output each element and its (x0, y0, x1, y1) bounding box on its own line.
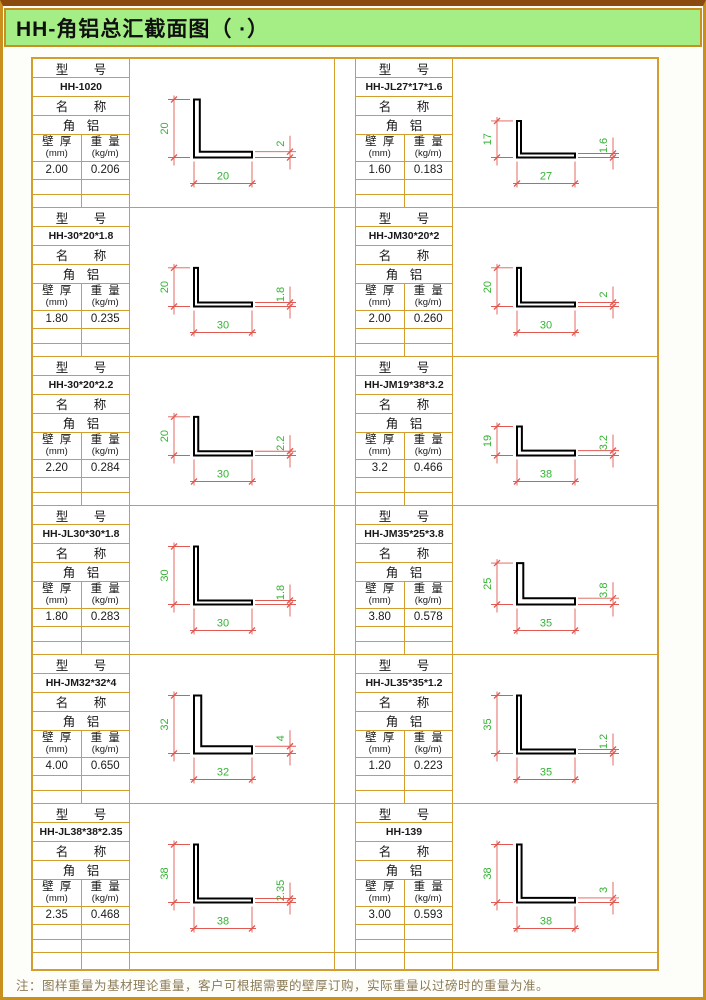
name-header-label: 名 称 (33, 246, 129, 265)
profile-cell: 型 号 HH-30*20*2.2 名 称 角 铝 壁 厚 (mm) 重 量 (k… (33, 357, 334, 505)
profile-diagram: 17271.6 (453, 59, 657, 207)
wall-thickness-unit: (mm) (46, 149, 68, 159)
spec-table: 型 号 HH-JM32*32*4 名 称 角 铝 壁 厚 (mm) 重 量 (k… (33, 655, 130, 803)
footer-strip-gap (453, 953, 657, 969)
weight-unit: (kg/m) (415, 149, 442, 159)
empty-row (356, 627, 452, 642)
model-header-label: 型 号 (356, 655, 452, 674)
model-header-label: 型 号 (356, 357, 452, 376)
product-name-label: 角 铝 (33, 712, 129, 731)
empty-row (356, 642, 452, 654)
profile-cell: 型 号 HH-1020 名 称 角 铝 壁 厚 (mm) 重 量 (kg/m) … (33, 59, 334, 207)
spec-table: 型 号 HH-1020 名 称 角 铝 壁 厚 (mm) 重 量 (kg/m) … (33, 59, 130, 207)
value-row: 2.00 0.206 (33, 162, 129, 181)
weight-unit: (kg/m) (415, 596, 442, 606)
empty-row (356, 493, 452, 505)
column-header-row: 壁 厚 (mm) 重 量 (kg/m) (356, 135, 452, 162)
weight-header: 重 量 (kg/m) (405, 731, 453, 757)
angle-profile-drawing: 19383.2 (453, 357, 657, 505)
wall-thickness-value: 2.00 (356, 311, 405, 329)
svg-text:20: 20 (159, 122, 171, 134)
wall-thickness-unit: (mm) (369, 894, 391, 904)
weight-value: 0.284 (82, 460, 130, 478)
angle-profile-drawing: 20202 (130, 59, 334, 207)
angle-profile-drawing: 35351.2 (453, 655, 657, 803)
empty-row (33, 344, 129, 356)
wall-thickness-value: 3.00 (356, 907, 405, 925)
weight-value: 0.578 (405, 609, 453, 627)
svg-text:4: 4 (275, 735, 287, 741)
wall-thickness-value: 1.80 (33, 311, 82, 329)
model-number: HH-30*20*2.2 (33, 376, 129, 395)
product-name-label: 角 铝 (33, 116, 129, 135)
value-row: 3.80 0.578 (356, 609, 452, 628)
value-row: 1.20 0.223 (356, 758, 452, 777)
wall-thickness-header: 壁 厚 (mm) (33, 284, 82, 310)
weight-header: 重 量 (kg/m) (82, 731, 130, 757)
svg-text:20: 20 (482, 281, 494, 293)
empty-row (356, 478, 452, 493)
svg-text:2: 2 (598, 291, 610, 297)
product-name-label: 角 铝 (356, 414, 452, 433)
profile-grid: 型 号 HH-1020 名 称 角 铝 壁 厚 (mm) 重 量 (kg/m) … (31, 57, 659, 971)
value-row: 2.35 0.468 (33, 907, 129, 926)
wall-thickness-value: 2.35 (33, 907, 82, 925)
profile-cell: 型 号 HH-139 名 称 角 铝 壁 厚 (mm) 重 量 (kg/m) 3… (356, 804, 657, 952)
product-name-label: 角 铝 (33, 414, 129, 433)
empty-row (33, 925, 129, 940)
wall-thickness-unit: (mm) (369, 447, 391, 457)
svg-text:20: 20 (159, 281, 171, 293)
footer-strip-left-table (33, 953, 130, 969)
name-header-label: 名 称 (33, 693, 129, 712)
profile-cell: 型 号 HH-JL30*30*1.8 名 称 角 铝 壁 厚 (mm) 重 量 … (33, 506, 334, 654)
name-header-label: 名 称 (356, 246, 452, 265)
weight-header: 重 量 (kg/m) (82, 880, 130, 906)
wall-thickness-unit: (mm) (46, 894, 68, 904)
grid-row: 型 号 HH-1020 名 称 角 铝 壁 厚 (mm) 重 量 (kg/m) … (33, 59, 657, 208)
model-header-label: 型 号 (33, 208, 129, 227)
wall-thickness-unit: (mm) (46, 447, 68, 457)
grid-row: 型 号 HH-30*20*1.8 名 称 角 铝 壁 厚 (mm) 重 量 (k… (33, 208, 657, 357)
empty-row (33, 180, 129, 195)
model-number: HH-JL38*38*2.35 (33, 823, 129, 842)
profile-diagram: 32324 (130, 655, 334, 803)
weight-unit: (kg/m) (415, 447, 442, 457)
wall-thickness-header: 壁 厚 (mm) (33, 731, 82, 757)
grid-row: 型 号 HH-JL38*38*2.35 名 称 角 铝 壁 厚 (mm) 重 量… (33, 804, 657, 953)
svg-text:25: 25 (482, 578, 494, 590)
angle-profile-drawing: 20302 (453, 208, 657, 356)
svg-text:3.2: 3.2 (598, 435, 610, 450)
profile-diagram: 20302 (453, 208, 657, 356)
profile-diagram: 25353.8 (453, 506, 657, 654)
value-row: 1.80 0.283 (33, 609, 129, 628)
angle-profile-drawing: 38383 (453, 804, 657, 952)
svg-text:38: 38 (540, 469, 552, 481)
name-header-label: 名 称 (33, 544, 129, 563)
profile-cell: 型 号 HH-JL35*35*1.2 名 称 角 铝 壁 厚 (mm) 重 量 … (356, 655, 657, 803)
profile-diagram: 20301.8 (130, 208, 334, 356)
title-bar: HH-角铝总汇截面图（ ·） (4, 8, 702, 47)
weight-unit: (kg/m) (92, 298, 119, 308)
model-header-label: 型 号 (33, 506, 129, 525)
model-number: HH-JM32*32*4 (33, 674, 129, 693)
weight-value: 0.468 (82, 907, 130, 925)
profile-cell: 型 号 HH-JL38*38*2.35 名 称 角 铝 壁 厚 (mm) 重 量… (33, 804, 334, 952)
wall-thickness-header: 壁 厚 (mm) (356, 135, 405, 161)
model-number: HH-JL27*17*1.6 (356, 78, 452, 97)
model-number: HH-JM30*20*2 (356, 227, 452, 246)
value-row: 3.00 0.593 (356, 907, 452, 926)
weight-unit: (kg/m) (92, 149, 119, 159)
svg-text:1.8: 1.8 (275, 287, 287, 302)
column-header-row: 壁 厚 (mm) 重 量 (kg/m) (356, 433, 452, 460)
angle-profile-drawing: 30301.8 (130, 506, 334, 654)
product-name-label: 角 铝 (356, 861, 452, 880)
model-header-label: 型 号 (33, 804, 129, 823)
model-header-label: 型 号 (33, 59, 129, 78)
svg-text:30: 30 (217, 320, 229, 332)
empty-row (356, 925, 452, 940)
column-header-row: 壁 厚 (mm) 重 量 (kg/m) (33, 433, 129, 460)
weight-unit: (kg/m) (415, 298, 442, 308)
weight-unit: (kg/m) (92, 894, 119, 904)
weight-value: 0.466 (405, 460, 453, 478)
profile-diagram: 30301.8 (130, 506, 334, 654)
spec-table: 型 号 HH-30*20*2.2 名 称 角 铝 壁 厚 (mm) 重 量 (k… (33, 357, 130, 505)
svg-text:32: 32 (217, 767, 229, 779)
model-header-label: 型 号 (356, 208, 452, 227)
angle-profile-drawing: 25353.8 (453, 506, 657, 654)
grid-row: 型 号 HH-JL30*30*1.8 名 称 角 铝 壁 厚 (mm) 重 量 … (33, 506, 657, 655)
empty-row (33, 195, 129, 207)
column-header-row: 壁 厚 (mm) 重 量 (kg/m) (356, 284, 452, 311)
empty-row (356, 940, 452, 952)
footer-strip-right-table (356, 953, 453, 969)
wall-thickness-value: 3.2 (356, 460, 405, 478)
svg-text:32: 32 (159, 718, 171, 730)
wall-thickness-unit: (mm) (46, 745, 68, 755)
weight-value: 0.235 (82, 311, 130, 329)
svg-text:35: 35 (482, 718, 494, 730)
svg-text:30: 30 (540, 320, 552, 332)
weight-value: 0.183 (405, 162, 453, 180)
svg-text:2.35: 2.35 (275, 880, 287, 901)
empty-row (33, 493, 129, 505)
svg-text:1.8: 1.8 (275, 585, 287, 600)
spec-table: 型 号 HH-JL35*35*1.2 名 称 角 铝 壁 厚 (mm) 重 量 … (356, 655, 453, 803)
spec-table: 型 号 HH-JM19*38*3.2 名 称 角 铝 壁 厚 (mm) 重 量 … (356, 357, 453, 505)
product-name-label: 角 铝 (356, 712, 452, 731)
page-title: HH-角铝总汇截面图（ ·） (16, 13, 269, 43)
weight-value: 0.206 (82, 162, 130, 180)
column-divider (334, 953, 356, 969)
spec-table: 型 号 HH-139 名 称 角 铝 壁 厚 (mm) 重 量 (kg/m) 3… (356, 804, 453, 952)
svg-text:1.2: 1.2 (598, 734, 610, 749)
model-number: HH-30*20*1.8 (33, 227, 129, 246)
profile-cell: 型 号 HH-30*20*1.8 名 称 角 铝 壁 厚 (mm) 重 量 (k… (33, 208, 334, 356)
footer-strip-gap (130, 953, 334, 969)
product-name-label: 角 铝 (356, 563, 452, 582)
wall-thickness-header: 壁 厚 (mm) (33, 880, 82, 906)
svg-text:1.6: 1.6 (598, 138, 610, 153)
weight-unit: (kg/m) (415, 745, 442, 755)
wall-thickness-unit: (mm) (369, 298, 391, 308)
svg-text:19: 19 (482, 435, 494, 447)
empty-row (33, 478, 129, 493)
profile-cell: 型 号 HH-JM35*25*3.8 名 称 角 铝 壁 厚 (mm) 重 量 … (356, 506, 657, 654)
wall-thickness-header: 壁 厚 (mm) (356, 433, 405, 459)
svg-text:35: 35 (540, 618, 552, 630)
weight-header: 重 量 (kg/m) (405, 582, 453, 608)
wall-thickness-value: 1.60 (356, 162, 405, 180)
svg-text:30: 30 (217, 618, 229, 630)
wall-thickness-unit: (mm) (46, 298, 68, 308)
grid-row: 型 号 HH-JM32*32*4 名 称 角 铝 壁 厚 (mm) 重 量 (k… (33, 655, 657, 804)
profile-diagram: 38382.35 (130, 804, 334, 952)
svg-text:38: 38 (217, 916, 229, 928)
value-row: 1.80 0.235 (33, 311, 129, 330)
wall-thickness-value: 4.00 (33, 758, 82, 776)
name-header-label: 名 称 (356, 544, 452, 563)
profile-cell: 型 号 HH-JL27*17*1.6 名 称 角 铝 壁 厚 (mm) 重 量 … (356, 59, 657, 207)
profile-diagram: 19383.2 (453, 357, 657, 505)
weight-unit: (kg/m) (92, 596, 119, 606)
weight-unit: (kg/m) (92, 745, 119, 755)
table-footer-strip (33, 953, 657, 969)
wall-thickness-header: 壁 厚 (mm) (356, 582, 405, 608)
model-header-label: 型 号 (356, 804, 452, 823)
svg-text:27: 27 (540, 171, 552, 183)
model-number: HH-JM35*25*3.8 (356, 525, 452, 544)
profile-diagram: 20302.2 (130, 357, 334, 505)
empty-row (356, 776, 452, 791)
wall-thickness-header: 壁 厚 (mm) (33, 582, 82, 608)
svg-text:3.8: 3.8 (598, 583, 610, 598)
column-header-row: 壁 厚 (mm) 重 量 (kg/m) (33, 284, 129, 311)
column-divider (334, 357, 356, 505)
column-divider (334, 506, 356, 654)
wall-thickness-value: 3.80 (356, 609, 405, 627)
empty-row (33, 627, 129, 642)
empty-row (356, 329, 452, 344)
weight-header: 重 量 (kg/m) (82, 284, 130, 310)
wall-thickness-value: 1.20 (356, 758, 405, 776)
column-header-row: 壁 厚 (mm) 重 量 (kg/m) (356, 731, 452, 758)
column-header-row: 壁 厚 (mm) 重 量 (kg/m) (33, 582, 129, 609)
wall-thickness-header: 壁 厚 (mm) (356, 284, 405, 310)
svg-text:20: 20 (159, 430, 171, 442)
value-row: 2.20 0.284 (33, 460, 129, 479)
profile-cell: 型 号 HH-JM30*20*2 名 称 角 铝 壁 厚 (mm) 重 量 (k… (356, 208, 657, 356)
weight-header: 重 量 (kg/m) (405, 880, 453, 906)
name-header-label: 名 称 (33, 97, 129, 116)
column-divider (334, 655, 356, 803)
column-divider (334, 59, 356, 207)
weight-header: 重 量 (kg/m) (405, 284, 453, 310)
empty-row (33, 642, 129, 654)
spec-table: 型 号 HH-JL38*38*2.35 名 称 角 铝 壁 厚 (mm) 重 量… (33, 804, 130, 952)
wall-thickness-value: 1.80 (33, 609, 82, 627)
model-number: HH-JM19*38*3.2 (356, 376, 452, 395)
value-row: 3.2 0.466 (356, 460, 452, 479)
weight-value: 0.650 (82, 758, 130, 776)
svg-text:38: 38 (159, 867, 171, 879)
empty-row (33, 791, 129, 803)
spec-table: 型 号 HH-30*20*1.8 名 称 角 铝 壁 厚 (mm) 重 量 (k… (33, 208, 130, 356)
weight-header: 重 量 (kg/m) (405, 135, 453, 161)
grid-row: 型 号 HH-30*20*2.2 名 称 角 铝 壁 厚 (mm) 重 量 (k… (33, 357, 657, 506)
profile-cell: 型 号 HH-JM32*32*4 名 称 角 铝 壁 厚 (mm) 重 量 (k… (33, 655, 334, 803)
empty-row (356, 195, 452, 207)
model-number: HH-JL35*35*1.2 (356, 674, 452, 693)
value-row: 1.60 0.183 (356, 162, 452, 181)
column-header-row: 壁 厚 (mm) 重 量 (kg/m) (356, 880, 452, 907)
weight-value: 0.593 (405, 907, 453, 925)
model-number: HH-JL30*30*1.8 (33, 525, 129, 544)
name-header-label: 名 称 (33, 842, 129, 861)
profile-diagram: 38383 (453, 804, 657, 952)
wall-thickness-header: 壁 厚 (mm) (356, 880, 405, 906)
wall-thickness-unit: (mm) (46, 596, 68, 606)
product-name-label: 角 铝 (356, 265, 452, 284)
spec-table: 型 号 HH-JL30*30*1.8 名 称 角 铝 壁 厚 (mm) 重 量 … (33, 506, 130, 654)
svg-text:30: 30 (159, 569, 171, 581)
empty-row (33, 776, 129, 791)
svg-text:2: 2 (275, 141, 287, 147)
name-header-label: 名 称 (356, 693, 452, 712)
weight-unit: (kg/m) (415, 894, 442, 904)
weight-header: 重 量 (kg/m) (405, 433, 453, 459)
product-name-label: 角 铝 (33, 265, 129, 284)
model-number: HH-1020 (33, 78, 129, 97)
svg-text:38: 38 (482, 867, 494, 879)
angle-profile-drawing: 38382.35 (130, 804, 334, 952)
column-divider (334, 804, 356, 952)
angle-profile-drawing: 32324 (130, 655, 334, 803)
svg-text:38: 38 (540, 916, 552, 928)
model-header-label: 型 号 (356, 59, 452, 78)
model-header-label: 型 号 (33, 655, 129, 674)
weight-header: 重 量 (kg/m) (82, 582, 130, 608)
column-header-row: 壁 厚 (mm) 重 量 (kg/m) (33, 880, 129, 907)
profile-diagram: 20202 (130, 59, 334, 207)
wall-thickness-header: 壁 厚 (mm) (33, 135, 82, 161)
weight-value: 0.260 (405, 311, 453, 329)
wall-thickness-value: 2.00 (33, 162, 82, 180)
weight-header: 重 量 (kg/m) (82, 135, 130, 161)
angle-profile-drawing: 20302.2 (130, 357, 334, 505)
profile-cell: 型 号 HH-JM19*38*3.2 名 称 角 铝 壁 厚 (mm) 重 量 … (356, 357, 657, 505)
empty-row (356, 791, 452, 803)
value-row: 4.00 0.650 (33, 758, 129, 777)
empty-row (33, 940, 129, 952)
wall-thickness-header: 壁 厚 (mm) (33, 433, 82, 459)
svg-text:20: 20 (217, 171, 229, 183)
empty-row (356, 180, 452, 195)
angle-profile-drawing: 20301.8 (130, 208, 334, 356)
empty-row (356, 344, 452, 356)
weight-value: 0.283 (82, 609, 130, 627)
angle-profile-drawing: 17271.6 (453, 59, 657, 207)
wall-thickness-header: 壁 厚 (mm) (356, 731, 405, 757)
wall-thickness-value: 2.20 (33, 460, 82, 478)
weight-value: 0.223 (405, 758, 453, 776)
weight-header: 重 量 (kg/m) (82, 433, 130, 459)
name-header-label: 名 称 (356, 842, 452, 861)
weight-unit: (kg/m) (92, 447, 119, 457)
svg-text:2.2: 2.2 (275, 436, 287, 451)
model-header-label: 型 号 (356, 506, 452, 525)
footnote: 注：图样重量为基材理论重量，客户可根据需要的壁厚订购，实际重量以过磅时的重量为准… (16, 975, 549, 994)
column-header-row: 壁 厚 (mm) 重 量 (kg/m) (356, 582, 452, 609)
product-name-label: 角 铝 (33, 861, 129, 880)
column-header-row: 壁 厚 (mm) 重 量 (kg/m) (33, 731, 129, 758)
wall-thickness-unit: (mm) (369, 745, 391, 755)
spec-table: 型 号 HH-JM35*25*3.8 名 称 角 铝 壁 厚 (mm) 重 量 … (356, 506, 453, 654)
profile-diagram: 35351.2 (453, 655, 657, 803)
empty-row (33, 329, 129, 344)
name-header-label: 名 称 (356, 97, 452, 116)
model-number: HH-139 (356, 823, 452, 842)
spec-table: 型 号 HH-JL27*17*1.6 名 称 角 铝 壁 厚 (mm) 重 量 … (356, 59, 453, 207)
wall-thickness-unit: (mm) (369, 596, 391, 606)
column-divider (334, 208, 356, 356)
svg-text:30: 30 (217, 469, 229, 481)
spec-table: 型 号 HH-JM30*20*2 名 称 角 铝 壁 厚 (mm) 重 量 (k… (356, 208, 453, 356)
svg-text:3: 3 (598, 887, 610, 893)
name-header-label: 名 称 (356, 395, 452, 414)
wall-thickness-unit: (mm) (369, 149, 391, 159)
model-header-label: 型 号 (33, 357, 129, 376)
value-row: 2.00 0.260 (356, 311, 452, 330)
svg-text:35: 35 (540, 767, 552, 779)
product-name-label: 角 铝 (356, 116, 452, 135)
product-name-label: 角 铝 (33, 563, 129, 582)
column-header-row: 壁 厚 (mm) 重 量 (kg/m) (33, 135, 129, 162)
name-header-label: 名 称 (33, 395, 129, 414)
svg-text:17: 17 (482, 133, 494, 145)
